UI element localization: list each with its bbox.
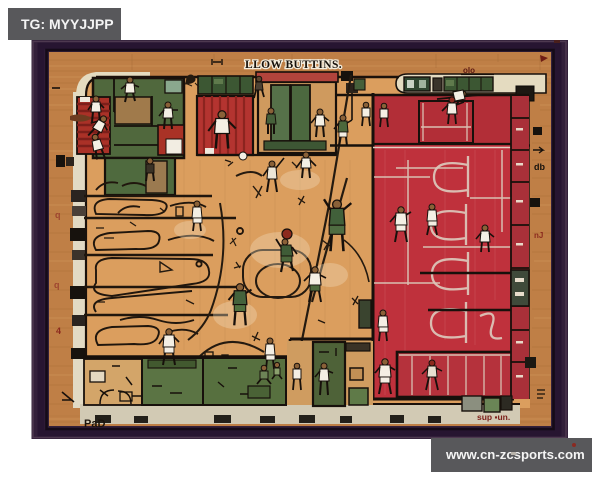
- svg-text:4: 4: [56, 326, 61, 336]
- svg-text:sup ▪un.: sup ▪un.: [477, 412, 510, 422]
- svg-text:LLOW BUTTINS.: LLOW BUTTINS.: [245, 59, 342, 71]
- svg-text:olo: olo: [463, 66, 475, 75]
- svg-text:q: q: [55, 210, 61, 220]
- svg-text:TG: MYYJJPP: TG: MYYJJPP: [21, 16, 114, 32]
- svg-text:q: q: [54, 280, 60, 290]
- svg-text:db: db: [534, 162, 545, 172]
- svg-text:nJ: nJ: [534, 231, 543, 240]
- svg-text:PaD: PaD: [84, 418, 105, 430]
